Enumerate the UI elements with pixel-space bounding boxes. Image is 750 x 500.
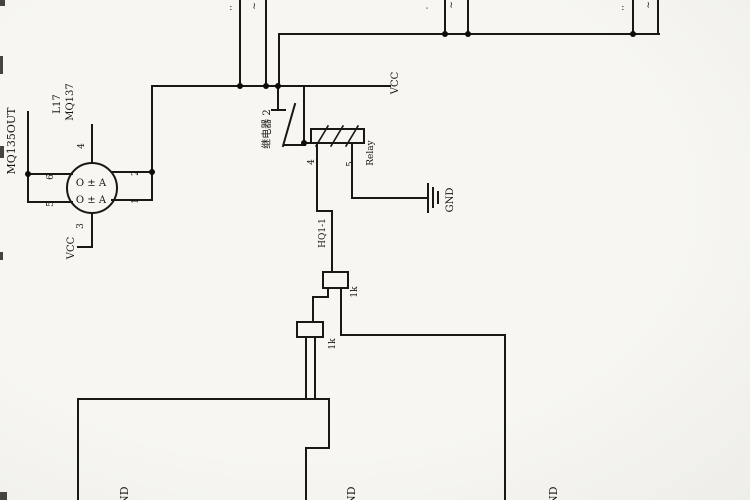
sensor-pin-4: 4 <box>77 143 87 149</box>
wire-group <box>28 0 659 500</box>
sensor-refdes: L17 <box>52 94 63 113</box>
top-vcc-label: VCC <box>390 71 401 95</box>
edge-smudge <box>0 252 3 260</box>
junction-dot <box>465 31 471 37</box>
relay-pin-4: 4 <box>307 159 317 165</box>
sensor-pin-5: 5 <box>46 201 56 207</box>
junction-dot <box>263 83 269 89</box>
cropped-pin-fragment: · <box>423 6 433 9</box>
cropped-pin-fragment: ~ <box>644 1 654 9</box>
junction-dot <box>442 31 448 37</box>
edge-smudge <box>0 492 7 500</box>
cropped-pin-fragment: ~ <box>447 1 457 9</box>
sensor-pin-6: 6 <box>46 174 56 180</box>
junction-dot <box>149 169 155 175</box>
net-label-mq135out: MQ135OUT <box>5 107 18 175</box>
gnd-label-bottom-right: GND <box>547 486 560 500</box>
sensor-inner-row-bottom: O ± A <box>76 195 107 206</box>
junction-dot <box>275 83 281 89</box>
wire-label-hq1-1: HQ1-1 <box>318 218 328 248</box>
sensor-inner-row-top: O ± A <box>76 178 107 189</box>
junction-dot <box>301 140 307 146</box>
resistor-r1-value: 1k <box>350 286 360 298</box>
junction-dot <box>25 171 31 177</box>
sensor-partnumber: MQ137 <box>65 83 76 121</box>
cropped-pin-fragment: ·· <box>619 5 629 11</box>
sensor-vcc-label: VCC <box>66 236 77 260</box>
junction-dot <box>630 31 636 37</box>
edge-smudge <box>0 0 5 6</box>
resistor-r2-value: 1k <box>328 338 338 350</box>
schematic-scan: MQ135OUT L17 MQ137 O ± A O ± A 4 3 6 5 2… <box>0 0 750 500</box>
junction-dot <box>237 83 243 89</box>
junction-dots <box>25 31 636 177</box>
sensor-pin-1: 1 <box>131 198 141 204</box>
schematic-drawing: MQ135OUT L17 MQ137 O ± A O ± A 4 3 6 5 2… <box>0 0 750 500</box>
sensor-pin-3: 3 <box>76 223 86 229</box>
edge-smudge <box>0 146 4 158</box>
cropped-pin-fragment: ·· <box>227 5 237 11</box>
sensor-pin-2: 2 <box>131 170 141 176</box>
relay-symbol <box>283 104 364 146</box>
relay-gnd-label: GND <box>445 188 456 213</box>
relay-pin-5: 5 <box>346 161 356 167</box>
gnd-label-bottom-left: GND <box>118 486 131 500</box>
resistor-box-r2 <box>297 322 323 337</box>
gnd-label-bottom-mid: GND <box>345 486 358 500</box>
scan-artifacts <box>0 0 7 500</box>
cropped-pin-fragment: ~ <box>250 2 260 10</box>
resistor-box-r1 <box>323 272 348 288</box>
relay-cn-label: 继电器 2 <box>260 109 273 149</box>
edge-smudge <box>0 56 3 74</box>
relay-name-label: Relay <box>366 139 376 165</box>
ground-symbol <box>428 184 438 212</box>
